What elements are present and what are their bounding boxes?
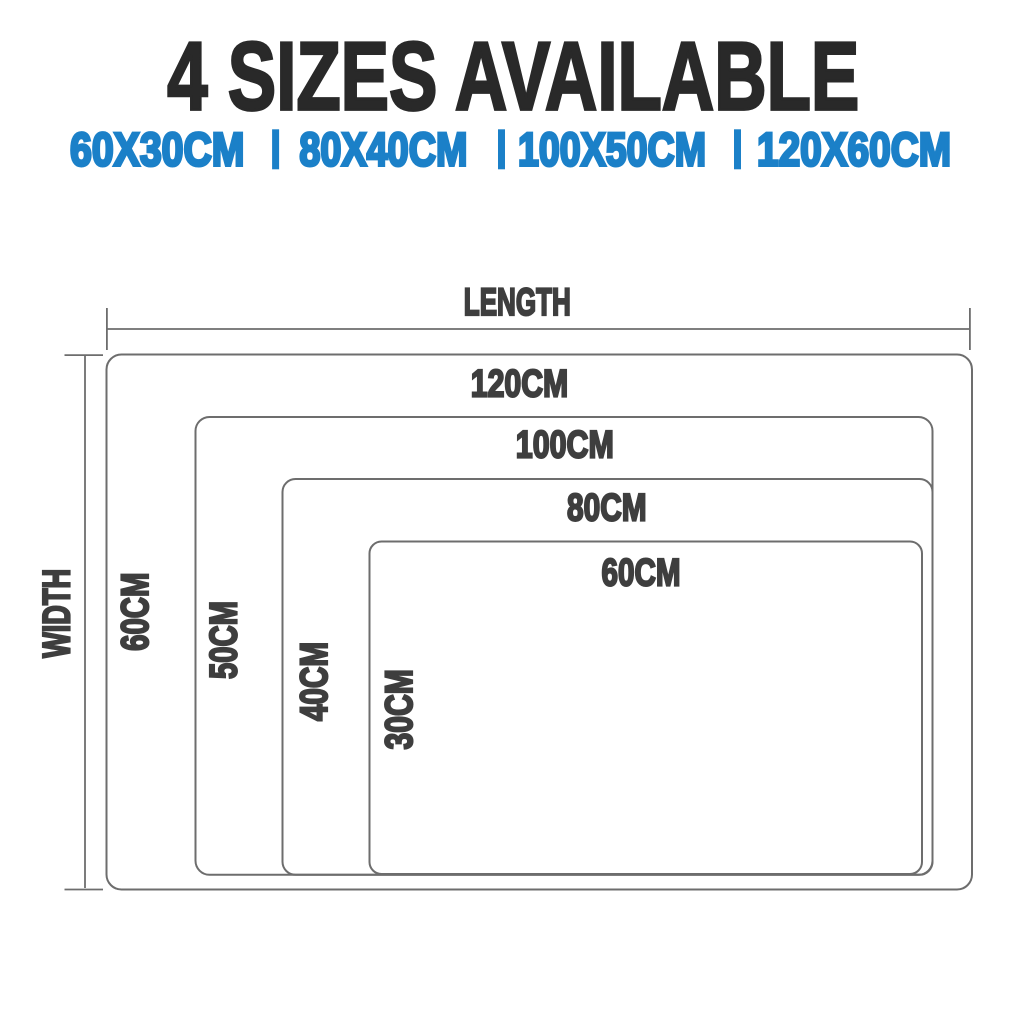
svg-text:100CM: 100CM <box>516 424 614 467</box>
svg-text:80X40CM: 80X40CM <box>299 123 467 176</box>
svg-text:LENGTH: LENGTH <box>464 281 571 324</box>
svg-text:60CM: 60CM <box>114 573 157 651</box>
svg-text:40CM: 40CM <box>293 642 336 721</box>
svg-text:WIDTH: WIDTH <box>35 569 78 658</box>
svg-text:60X30CM: 60X30CM <box>70 123 245 176</box>
svg-text:30CM: 30CM <box>378 669 421 749</box>
svg-text:80CM: 80CM <box>567 486 647 529</box>
svg-text:50CM: 50CM <box>202 601 245 679</box>
svg-text:120CM: 120CM <box>471 362 569 405</box>
svg-text:4 SIZES AVAILABLE: 4 SIZES AVAILABLE <box>167 22 859 131</box>
svg-text:120X60CM: 120X60CM <box>757 123 951 176</box>
svg-text:100X50CM: 100X50CM <box>518 123 706 176</box>
svg-text:60CM: 60CM <box>602 552 681 595</box>
